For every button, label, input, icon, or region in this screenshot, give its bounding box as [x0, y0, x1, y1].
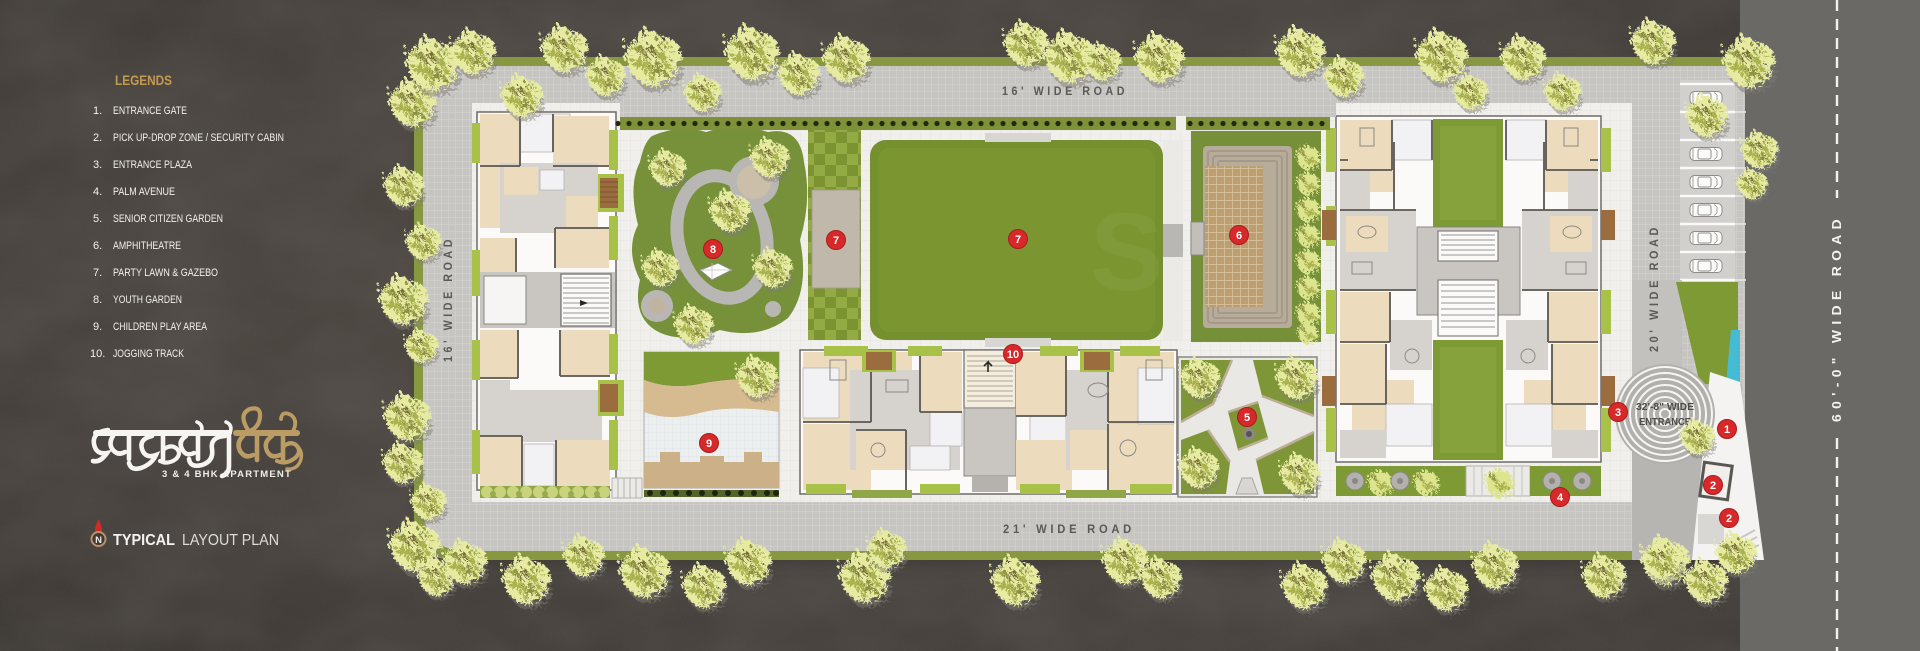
svg-text:7: 7 [1015, 234, 1021, 246]
svg-text:TYPICAL: TYPICAL [113, 532, 175, 549]
svg-text:21' WIDE ROAD: 21' WIDE ROAD [1003, 522, 1135, 536]
svg-text:9: 9 [706, 438, 712, 450]
svg-text:CHILDREN PLAY AREA: CHILDREN PLAY AREA [113, 321, 208, 333]
svg-text:5.: 5. [93, 213, 102, 225]
svg-text:8: 8 [710, 244, 716, 256]
svg-text:SENIOR CITIZEN GARDEN: SENIOR CITIZEN GARDEN [113, 213, 223, 225]
svg-text:5: 5 [1244, 412, 1250, 424]
svg-text:7: 7 [833, 235, 839, 247]
svg-text:2: 2 [1710, 480, 1716, 492]
svg-text:3 & 4 BHK APARTMENT: 3 & 4 BHK APARTMENT [162, 469, 292, 480]
svg-text:YOUTH GARDEN: YOUTH GARDEN [113, 294, 182, 306]
svg-text:LEGENDS: LEGENDS [115, 72, 172, 88]
svg-text:2: 2 [1726, 513, 1732, 525]
svg-text:16' WIDE ROAD: 16' WIDE ROAD [1002, 84, 1128, 98]
svg-text:8.: 8. [93, 294, 102, 306]
svg-text:N: N [95, 535, 102, 546]
svg-text:4.: 4. [93, 186, 102, 198]
svg-text:ENTRANCE PLAZA: ENTRANCE PLAZA [113, 159, 193, 171]
svg-text:3: 3 [1615, 407, 1621, 419]
svg-text:2.: 2. [93, 132, 102, 144]
svg-text:4: 4 [1557, 492, 1564, 504]
svg-text:60'-0" WIDE ROAD: 60'-0" WIDE ROAD [1829, 214, 1844, 422]
svg-text:32'-8" WIDE: 32'-8" WIDE [1636, 402, 1694, 413]
svg-text:6: 6 [1236, 230, 1242, 242]
svg-text:7.: 7. [93, 267, 102, 279]
svg-text:16' WIDE ROAD: 16' WIDE ROAD [441, 236, 455, 362]
svg-text:9.: 9. [93, 321, 102, 333]
svg-text:6.: 6. [93, 240, 102, 252]
svg-text:3.: 3. [93, 159, 102, 171]
svg-text:AMPHITHEATRE: AMPHITHEATRE [113, 240, 181, 252]
svg-text:10.: 10. [90, 348, 105, 360]
svg-text:1.: 1. [93, 105, 102, 117]
svg-text:JOGGING TRACK: JOGGING TRACK [113, 348, 185, 360]
svg-text:1: 1 [1724, 424, 1730, 436]
svg-text:PICK UP-DROP ZONE / SECURITY C: PICK UP-DROP ZONE / SECURITY CABIN [113, 132, 284, 144]
svg-text:10: 10 [1007, 349, 1019, 361]
svg-text:LAYOUT PLAN: LAYOUT PLAN [182, 532, 279, 549]
svg-text:PALM AVENUE: PALM AVENUE [113, 186, 175, 198]
svg-text:PARTY LAWN & GAZEBO: PARTY LAWN & GAZEBO [113, 267, 218, 279]
svg-text:ENTRANCE GATE: ENTRANCE GATE [113, 105, 187, 117]
svg-text:20' WIDE ROAD: 20' WIDE ROAD [1647, 224, 1661, 352]
